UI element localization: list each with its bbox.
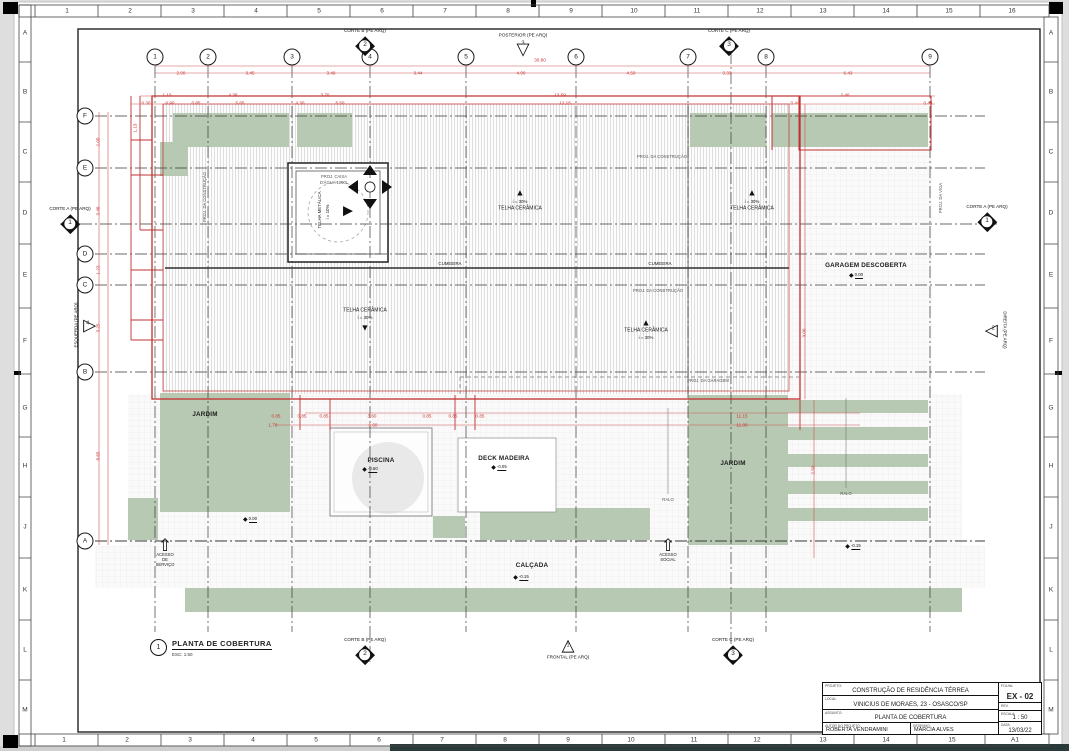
drawing-number-bubble: 1 xyxy=(150,639,167,656)
project-name: CONSTRUÇÃO DE RESIDÊNCIA TÉRREA xyxy=(852,688,969,694)
draftsperson: MARCIA ALVES xyxy=(914,727,954,733)
roof-hatch xyxy=(163,104,790,394)
sheet-date: 13/03/22 xyxy=(1008,728,1031,734)
sheet-number: EX - 02 xyxy=(1007,692,1034,702)
cad-sheet-view: 12345678910111213141516 1234567891011121… xyxy=(0,0,1069,751)
bottom-dark-strip xyxy=(390,744,1069,751)
garage-paving xyxy=(790,104,932,394)
titleblock-local-row: LOCAL: VINICIUS DE MORAES, 23 - OSASCO/S… xyxy=(823,696,998,709)
titleblock-assunto-row: ASSUNTO: PLANTA DE COBERTURA xyxy=(823,710,998,723)
deck-shape xyxy=(458,438,556,512)
sheet-subject: PLANTA DE COBERTURA xyxy=(875,715,947,721)
drawing-title-text: PLANTA DE COBERTURA xyxy=(172,639,272,650)
sidewalk-paving xyxy=(95,546,985,588)
titleblock-projeto-row: PROJETO: CONSTRUÇÃO DE RESIDÊNCIA TÉRREA xyxy=(823,683,998,696)
metal-roof-box xyxy=(288,163,388,262)
titleblock-folha-cell: FOLHA: EX - 02 xyxy=(999,683,1041,703)
project-author: ROBERTA VENDRAMINI xyxy=(826,727,888,733)
title-block: PROJETO: CONSTRUÇÃO DE RESIDÊNCIA TÉRREA… xyxy=(822,682,1042,735)
titleblock-data-cell: DATA: 13/03/22 xyxy=(999,722,1041,734)
drawing-title: 1 PLANTA DE COBERTURA ESC: 1:50 xyxy=(150,639,272,657)
titleblock-rev-cell: REV. xyxy=(999,703,1041,711)
project-address: VINICIUS DE MORAES, 23 - OSASCO/SP xyxy=(853,702,967,708)
tree-canopy xyxy=(352,442,424,514)
titleblock-author-row: AUTOR DO PROJETO: ROBERTA VENDRAMINI DES… xyxy=(823,723,998,734)
titleblock-escala-cell: ESCALA: 1 : 50 xyxy=(999,711,1041,722)
drawing-scale-text: ESC: 1:50 xyxy=(172,652,272,657)
